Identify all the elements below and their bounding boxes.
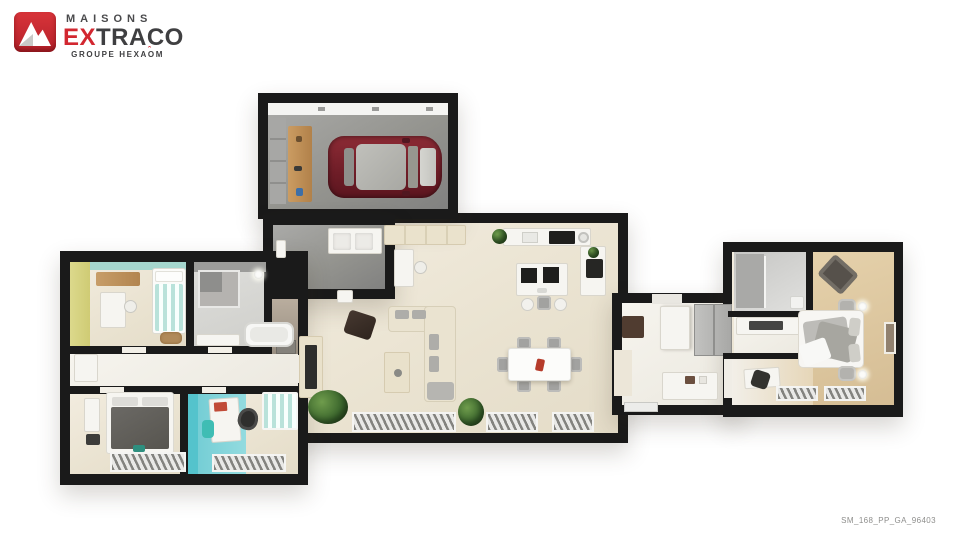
kitchen-plant-small [588, 247, 599, 258]
desk3-red-notebook [214, 402, 228, 412]
island-faucet [537, 288, 547, 293]
sofa-cushion [395, 310, 409, 319]
hallway-floor [70, 354, 298, 386]
brand-traco: TRACO [96, 24, 184, 51]
extraco-mountain-logo-icon [14, 12, 56, 52]
bench-cushion [333, 233, 351, 250]
sideboard-item-brown [685, 376, 695, 384]
corridor-wardrobe [694, 304, 732, 356]
bathtub-inner [250, 327, 288, 342]
kitchen-counter-top [503, 228, 591, 246]
car-windshield [408, 146, 418, 188]
bed1-duvet [155, 284, 183, 331]
garage-door-mark [372, 107, 379, 111]
bedroom3-bed [262, 392, 298, 430]
bedroom1-bed [152, 268, 186, 334]
bedroom4-bed [798, 310, 864, 368]
hallway-cabinet [74, 354, 98, 382]
kitchen-oven [522, 232, 538, 243]
floorplan-render-page: MAISONS EXTRACO GROUPE HEXAOˆM [0, 0, 960, 540]
cellier-appliance [276, 240, 286, 258]
corridor-front-door [652, 294, 682, 304]
garage-car [328, 136, 442, 198]
living-wall-cabinets [384, 225, 466, 245]
sofa-cushion [429, 356, 439, 372]
plan-reference-code: SM_168_PP_GA_96403 [841, 516, 936, 525]
bathroom2-floor [734, 252, 806, 311]
bedroom4-window-left [776, 386, 818, 401]
dining-chair [517, 380, 531, 392]
garage-workbench [288, 126, 312, 202]
car-rear-glass [344, 148, 354, 186]
kitchenette-counter [736, 317, 804, 335]
workbench-tool [294, 166, 302, 171]
bedroom3-cyan-wall [188, 394, 198, 474]
bench-cushion [355, 233, 373, 250]
bedroom4-wall-frame [884, 322, 896, 354]
dining-chair [570, 357, 582, 372]
living-plant-large [308, 390, 348, 424]
bedroom2-bed [106, 392, 174, 454]
wall-hall-top [64, 346, 300, 354]
bathroom2-sink [790, 296, 804, 309]
bedroom4-lamp-bottom [858, 370, 867, 379]
bedroom1-chair [124, 300, 137, 313]
corridor-window [624, 402, 658, 412]
living-window-right [552, 412, 594, 432]
sofa-chaise-cushion [427, 382, 454, 400]
bedroom2-tv [86, 434, 100, 445]
bed4-pillow [848, 343, 861, 362]
brand-group-caret: ˆ [148, 45, 151, 55]
brand-extraco-text: EXTRACO [63, 24, 184, 52]
bedroom1-basket [160, 332, 182, 344]
bedroom3-window [212, 454, 286, 472]
island-dark-panel [543, 267, 559, 283]
corridor-shelf [622, 316, 644, 338]
bed4-pillow [848, 317, 861, 336]
brand-logo: MAISONS EXTRACO GROUPE HEXAOˆM [0, 0, 200, 70]
dining-chair [547, 380, 561, 392]
dining-table [508, 348, 571, 381]
tv-screen [305, 345, 317, 389]
bed2-throw [133, 445, 145, 452]
kitchen-plant [492, 229, 507, 244]
bedroom1-shelf [96, 272, 140, 286]
sofa-cushion [429, 334, 439, 350]
bedroom4-window-right [824, 386, 866, 401]
brand-group-text: GROUPE HEXAOˆM [60, 50, 164, 59]
dining-red-figurine [535, 358, 545, 371]
kitchen-sink-unit [586, 259, 603, 278]
island-stool [521, 298, 534, 311]
car-mirror [402, 191, 410, 196]
bed2-pillow [142, 397, 168, 406]
car-roof [356, 144, 406, 190]
bedroom2-window [110, 452, 186, 472]
coffee-table-item [394, 369, 402, 377]
bathroom1-vanity [196, 334, 240, 346]
wardrobe-divider [713, 305, 715, 355]
bedroom3-teal-chair [202, 420, 214, 438]
kitchen-small-sink [578, 232, 589, 243]
car-hood [420, 148, 436, 186]
island-dark-panel [521, 268, 537, 283]
bed2-pillow [112, 397, 138, 406]
bed1-pillow [155, 271, 183, 282]
living-plant-small [458, 398, 484, 426]
door-mark-bedroom1 [122, 347, 146, 353]
cellier-living-door [337, 290, 353, 303]
garage-cabinets [270, 118, 286, 204]
workbench-tool [296, 136, 302, 142]
bed2-duvet [111, 407, 169, 449]
island-stool [554, 298, 567, 311]
brand-group-left: GROUPE HEXA [71, 50, 148, 59]
living-window-left [352, 412, 456, 432]
brand-ex: EX [63, 24, 96, 51]
opening-living-corridor [614, 350, 632, 396]
kitchen-island [516, 263, 568, 296]
living-desk [394, 249, 414, 287]
corridor-sideboard [662, 372, 718, 400]
bedroom1-yellow-wall [70, 262, 90, 346]
kitchenette-cooktop [749, 321, 783, 330]
bedroom1-desk [100, 292, 126, 328]
bedroom2-wardrobe [84, 398, 100, 432]
bedroom4-pouf-bottom [838, 366, 856, 381]
kitchen-cooktop [549, 231, 575, 244]
living-window-center [486, 412, 538, 432]
bathroom2-glass [764, 256, 766, 308]
garage-door-band [268, 103, 448, 115]
workbench-tool [296, 188, 303, 196]
shower-corner [200, 272, 222, 292]
cellier-bench [328, 228, 382, 254]
island-chair [537, 296, 551, 310]
door-mark-bedroom3 [202, 387, 226, 393]
wall-bed1-bath1 [186, 253, 194, 352]
bathroom1-shower [198, 270, 240, 308]
brand-group-o: Oˆ [148, 50, 156, 59]
living-desk-chair [414, 261, 427, 274]
garage-door-mark [318, 107, 325, 111]
garage-door-mark [426, 107, 433, 111]
corridor-door-panel [660, 306, 690, 350]
car-mirror [402, 138, 410, 143]
bathroom1-bathtub [244, 322, 294, 347]
sofa-cushion [412, 310, 426, 319]
coffee-table [384, 352, 410, 393]
sideboard-item-white [699, 376, 707, 384]
bathroom2-shower-wall [736, 254, 764, 308]
door-mark-bathroom1 [208, 347, 232, 353]
brand-group-right: M [156, 50, 164, 59]
bathroom1-pendant-light [254, 270, 263, 279]
